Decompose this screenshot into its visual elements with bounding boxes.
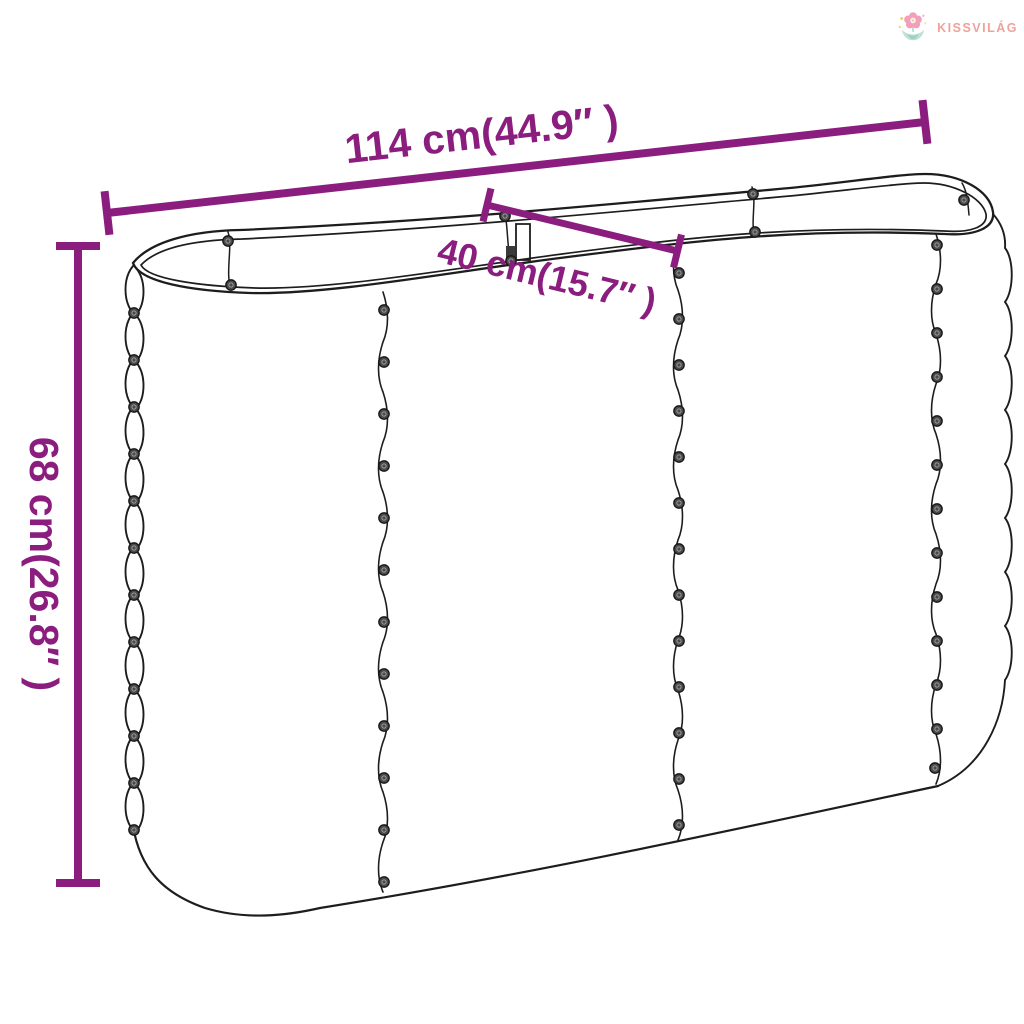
dimension-length-tick-left: [105, 191, 110, 235]
dimension-height: 68 cm(26.8″ ): [21, 246, 100, 883]
right-corrugated-edge: [938, 214, 1012, 786]
front-seam-middle: [674, 240, 683, 840]
brand-logo: KISSVILÁG: [896, 10, 1018, 46]
brand-name: KISSVILÁG: [937, 21, 1018, 35]
bottom-edge: [133, 786, 938, 916]
dimension-width-tick-left: [483, 188, 491, 221]
dimension-length-tick-right: [923, 100, 928, 144]
dimension-label-width: 40 cm(15.7″ ): [434, 229, 661, 321]
dimension-width-tick-right: [674, 235, 682, 268]
dimension-label-height: 68 cm(26.8″ ): [21, 437, 67, 691]
front-seam-left: [379, 292, 388, 892]
planter-line-art: 114 cm(44.9″ ) 40 cm(15.7″ ) 68 cm(26.8″…: [0, 0, 1024, 1024]
dimension-annotations: 114 cm(44.9″ ) 40 cm(15.7″ ) 68 cm(26.8″…: [21, 62, 927, 883]
flower-logo-icon: [896, 10, 930, 46]
dimension-diagram-page: 114 cm(44.9″ ) 40 cm(15.7″ ) 68 cm(26.8″…: [0, 0, 1024, 1024]
